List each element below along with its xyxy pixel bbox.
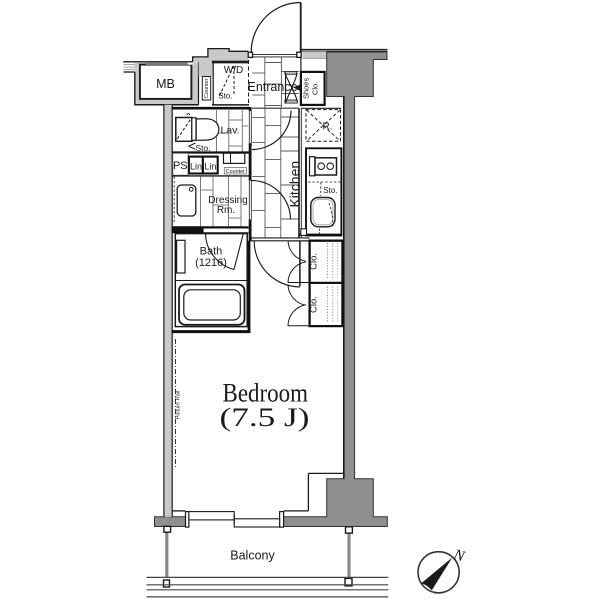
svg-text:W/D: W/D (224, 65, 243, 76)
svg-text:Lin: Lin (190, 162, 202, 172)
svg-text:Counter: Counter (226, 169, 245, 175)
svg-text:Sto.: Sto. (323, 186, 337, 195)
svg-text:Clo.: Clo. (311, 82, 320, 95)
svg-text:Entrance: Entrance (247, 80, 297, 94)
svg-text:Rm.: Rm. (217, 205, 235, 216)
svg-text:(7.5 J): (7.5 J) (220, 403, 310, 432)
svg-text:Lav.: Lav. (220, 125, 239, 137)
svg-text:MB: MB (156, 77, 175, 91)
svg-text:Lin: Lin (204, 162, 216, 172)
svg-text:Sto.: Sto. (218, 91, 232, 100)
svg-text:Balcony: Balcony (230, 549, 275, 563)
svg-text:Bath: Bath (200, 246, 223, 258)
svg-text:Sto.: Sto. (195, 143, 210, 153)
svg-text:Clo.: Clo. (309, 253, 320, 270)
svg-text:(1216): (1216) (195, 257, 227, 269)
svg-text:Counter: Counter (204, 78, 210, 98)
svg-text:Clo.: Clo. (309, 296, 320, 313)
svg-text:Kitchen: Kitchen (287, 161, 303, 208)
svg-text:Picture Rail: Picture Rail (176, 391, 182, 420)
svg-text:PS: PS (173, 160, 188, 172)
svg-text:R.: R. (323, 122, 333, 133)
svg-text:Shoes: Shoes (302, 78, 311, 100)
